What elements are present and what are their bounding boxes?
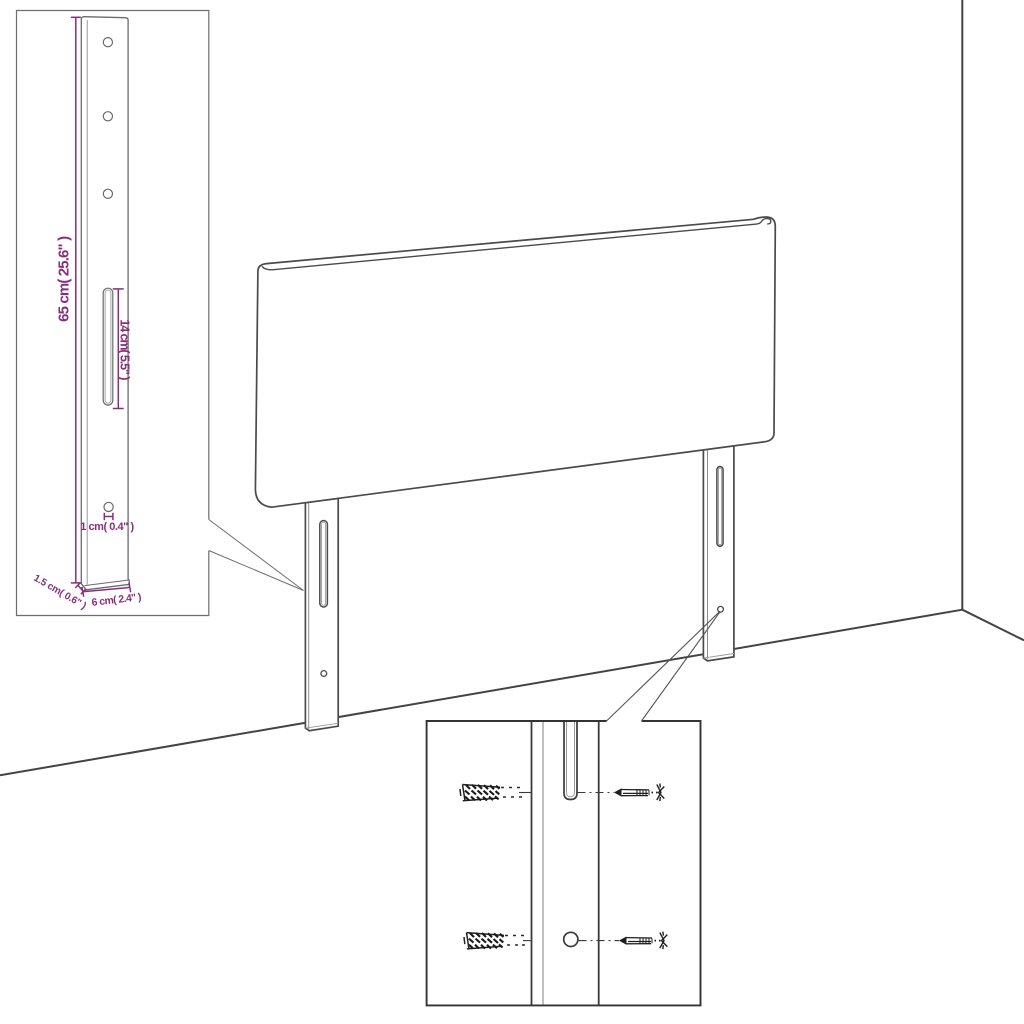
svg-text:14 cm( 5.5" ): 14 cm( 5.5" ) <box>118 319 132 380</box>
svg-text:65 cm( 25.6" ): 65 cm( 25.6" ) <box>56 236 73 322</box>
svg-text:1 cm( 0.4" ): 1 cm( 0.4" ) <box>80 521 134 533</box>
